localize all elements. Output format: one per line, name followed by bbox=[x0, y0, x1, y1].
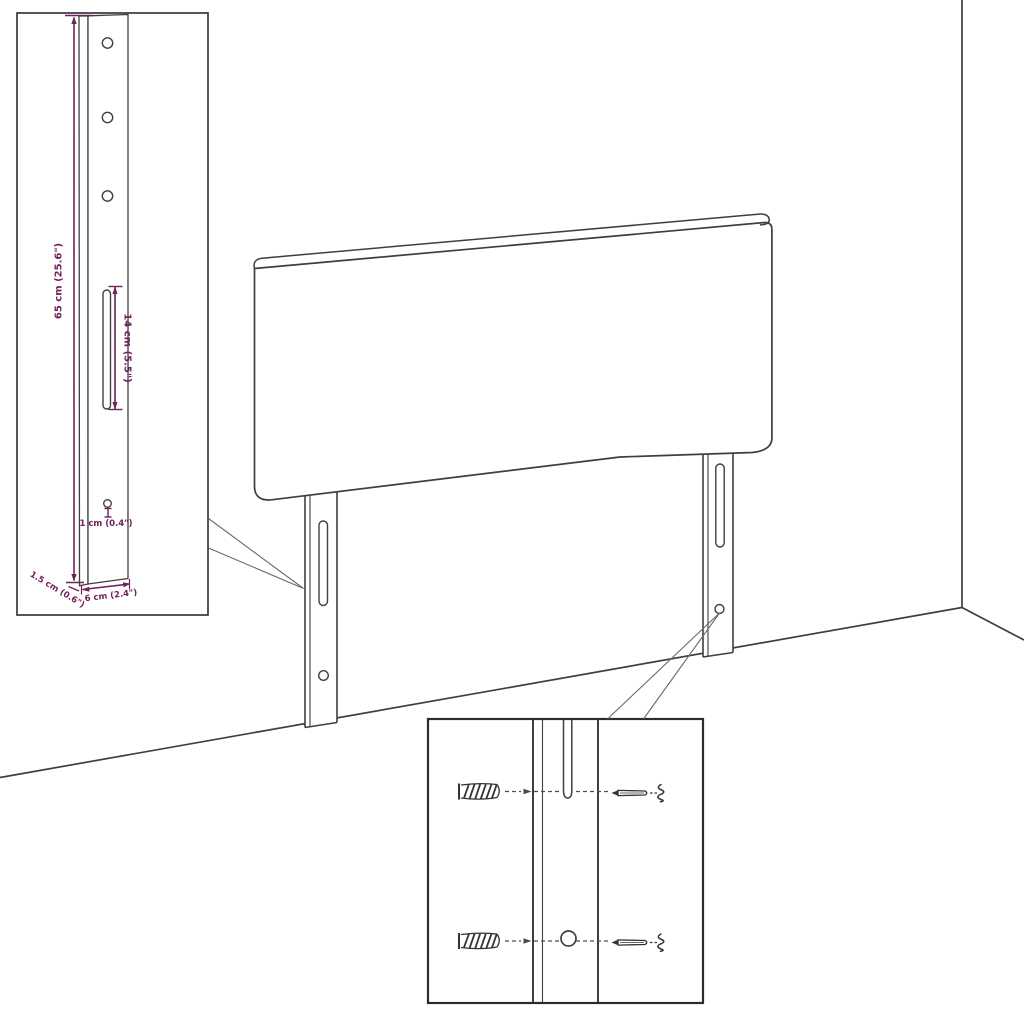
mounting-hole bbox=[561, 931, 576, 946]
dimension-label-slot: 14 cm (5.5") bbox=[122, 313, 133, 382]
headboard-right-leg bbox=[703, 445, 733, 657]
floor-line-right bbox=[962, 608, 1024, 641]
bracket-small-hole bbox=[104, 500, 112, 508]
callout-lines-mounting bbox=[608, 613, 720, 719]
bracket-hole-bottom bbox=[102, 191, 112, 201]
left-leg-slot bbox=[319, 521, 328, 606]
bracket-hole-middle bbox=[102, 112, 112, 122]
headboard-assembly-diagram bbox=[0, 0, 1024, 1024]
right-leg-slot bbox=[716, 464, 724, 547]
headboard-front-face bbox=[255, 223, 772, 500]
dimension-label-height: 65 cm (25.6") bbox=[54, 243, 65, 319]
callout-lines-bracket bbox=[209, 519, 304, 589]
headboard-left-leg bbox=[305, 487, 337, 728]
dimension-label-hole: 1 cm (0.4") bbox=[80, 519, 133, 529]
headboard-panel bbox=[254, 214, 772, 500]
bracket-hole-top bbox=[102, 38, 112, 48]
product-diagram-canvas: 65 cm (25.6") 14 cm (5.5") 1 cm (0.4") 1… bbox=[0, 0, 1024, 1024]
bracket-slot bbox=[103, 290, 111, 409]
mounting-inset-border bbox=[428, 719, 703, 1003]
right-leg-hole bbox=[715, 605, 724, 614]
left-leg-hole bbox=[319, 671, 329, 681]
mounting-detail-inset bbox=[428, 719, 703, 1003]
